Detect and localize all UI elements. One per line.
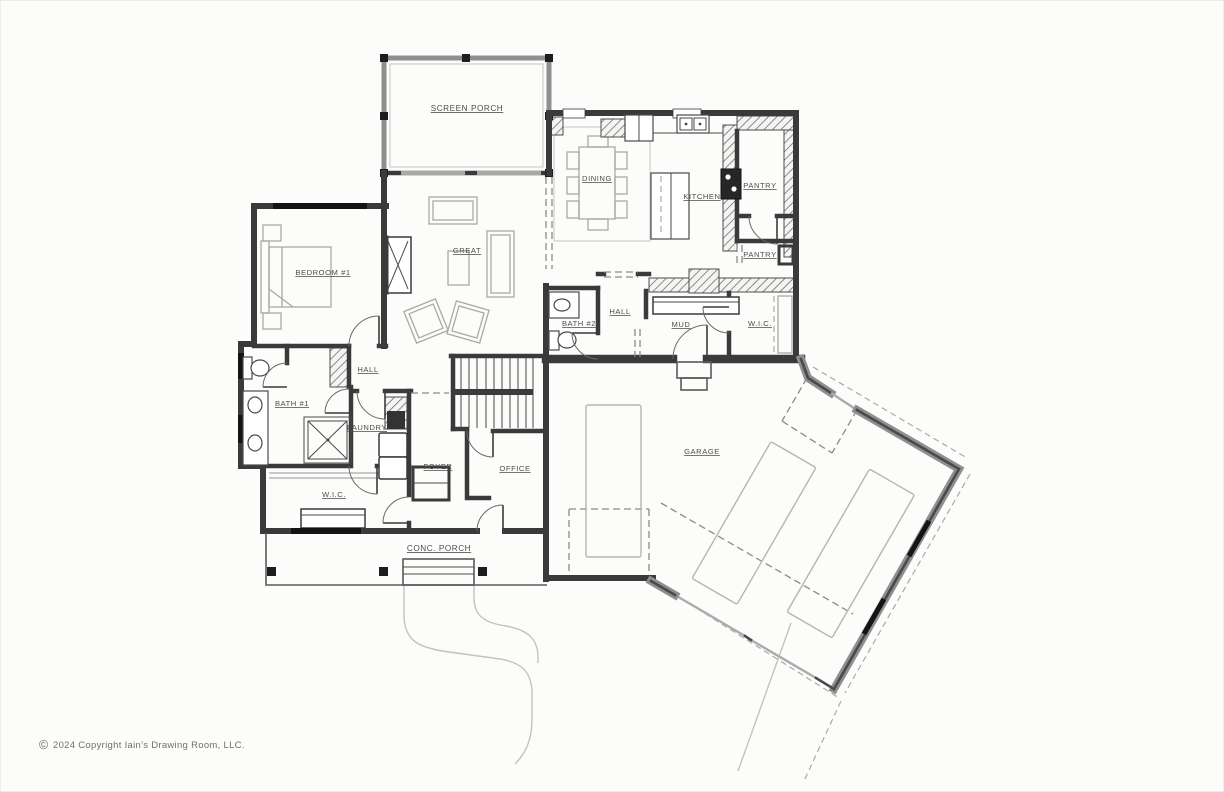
- room-label-great: GREAT: [453, 246, 481, 255]
- concrete-porch: [266, 533, 547, 585]
- room-label-pantry-upper: PANTRY: [743, 181, 776, 190]
- room-label-wic-west: W.I.C.: [322, 490, 346, 499]
- great-room-furniture: [404, 197, 514, 343]
- room-label-bath-1: BATH #1: [275, 399, 309, 408]
- mud-bench: [653, 297, 739, 314]
- staircase: [453, 358, 533, 428]
- room-label-foyer: FOYER: [424, 462, 453, 471]
- copyright-symbol: ©: [39, 738, 49, 752]
- copyright-text: 2024 Copyright Iain's Drawing Room, LLC.: [53, 740, 245, 751]
- room-label-pantry-lower: PANTRY: [743, 250, 776, 259]
- garage-dashed-lines: [569, 367, 970, 781]
- garage-angled-walls: [651, 359, 959, 689]
- room-label-dining: DINING: [582, 174, 612, 183]
- room-label-bedroom-1: BEDROOM #1: [295, 268, 350, 277]
- room-label-screen-porch: SCREEN PORCH: [431, 104, 504, 113]
- screen-porch-structure: [380, 54, 553, 177]
- room-label-bath-2: BATH #2: [562, 319, 596, 328]
- room-label-office: OFFICE: [499, 464, 530, 473]
- mud-stoop: [677, 362, 711, 390]
- garage-car-outlines: [586, 405, 915, 638]
- room-label-conc-porch: CONC. PORCH: [407, 544, 471, 553]
- copyright-note: © 2024 Copyright Iain's Drawing Room, LL…: [39, 738, 245, 752]
- room-label-kitchen: KITCHEN: [683, 192, 720, 201]
- laundry-appliances: [379, 411, 407, 479]
- site-walkway-lines: [404, 586, 791, 771]
- floor-plan-canvas: SCREEN PORCH DINING KITCHEN PANTRY PANTR…: [1, 1, 1224, 792]
- fireplace: [385, 237, 411, 293]
- closet-fittings: [269, 296, 792, 528]
- bed: [261, 225, 331, 329]
- room-label-hall-west: HALL: [357, 365, 378, 374]
- floor-plan-sheet: SCREEN PORCH DINING KITCHEN PANTRY PANTR…: [0, 0, 1224, 792]
- room-label-wic-east: W.I.C.: [748, 319, 772, 328]
- room-label-garage: GARAGE: [684, 447, 720, 456]
- room-label-hall-east: HALL: [609, 307, 630, 316]
- room-label-laundry: LAUNDRY: [347, 423, 387, 432]
- dining-furniture: [554, 127, 650, 241]
- room-label-mud: MUD: [672, 320, 691, 329]
